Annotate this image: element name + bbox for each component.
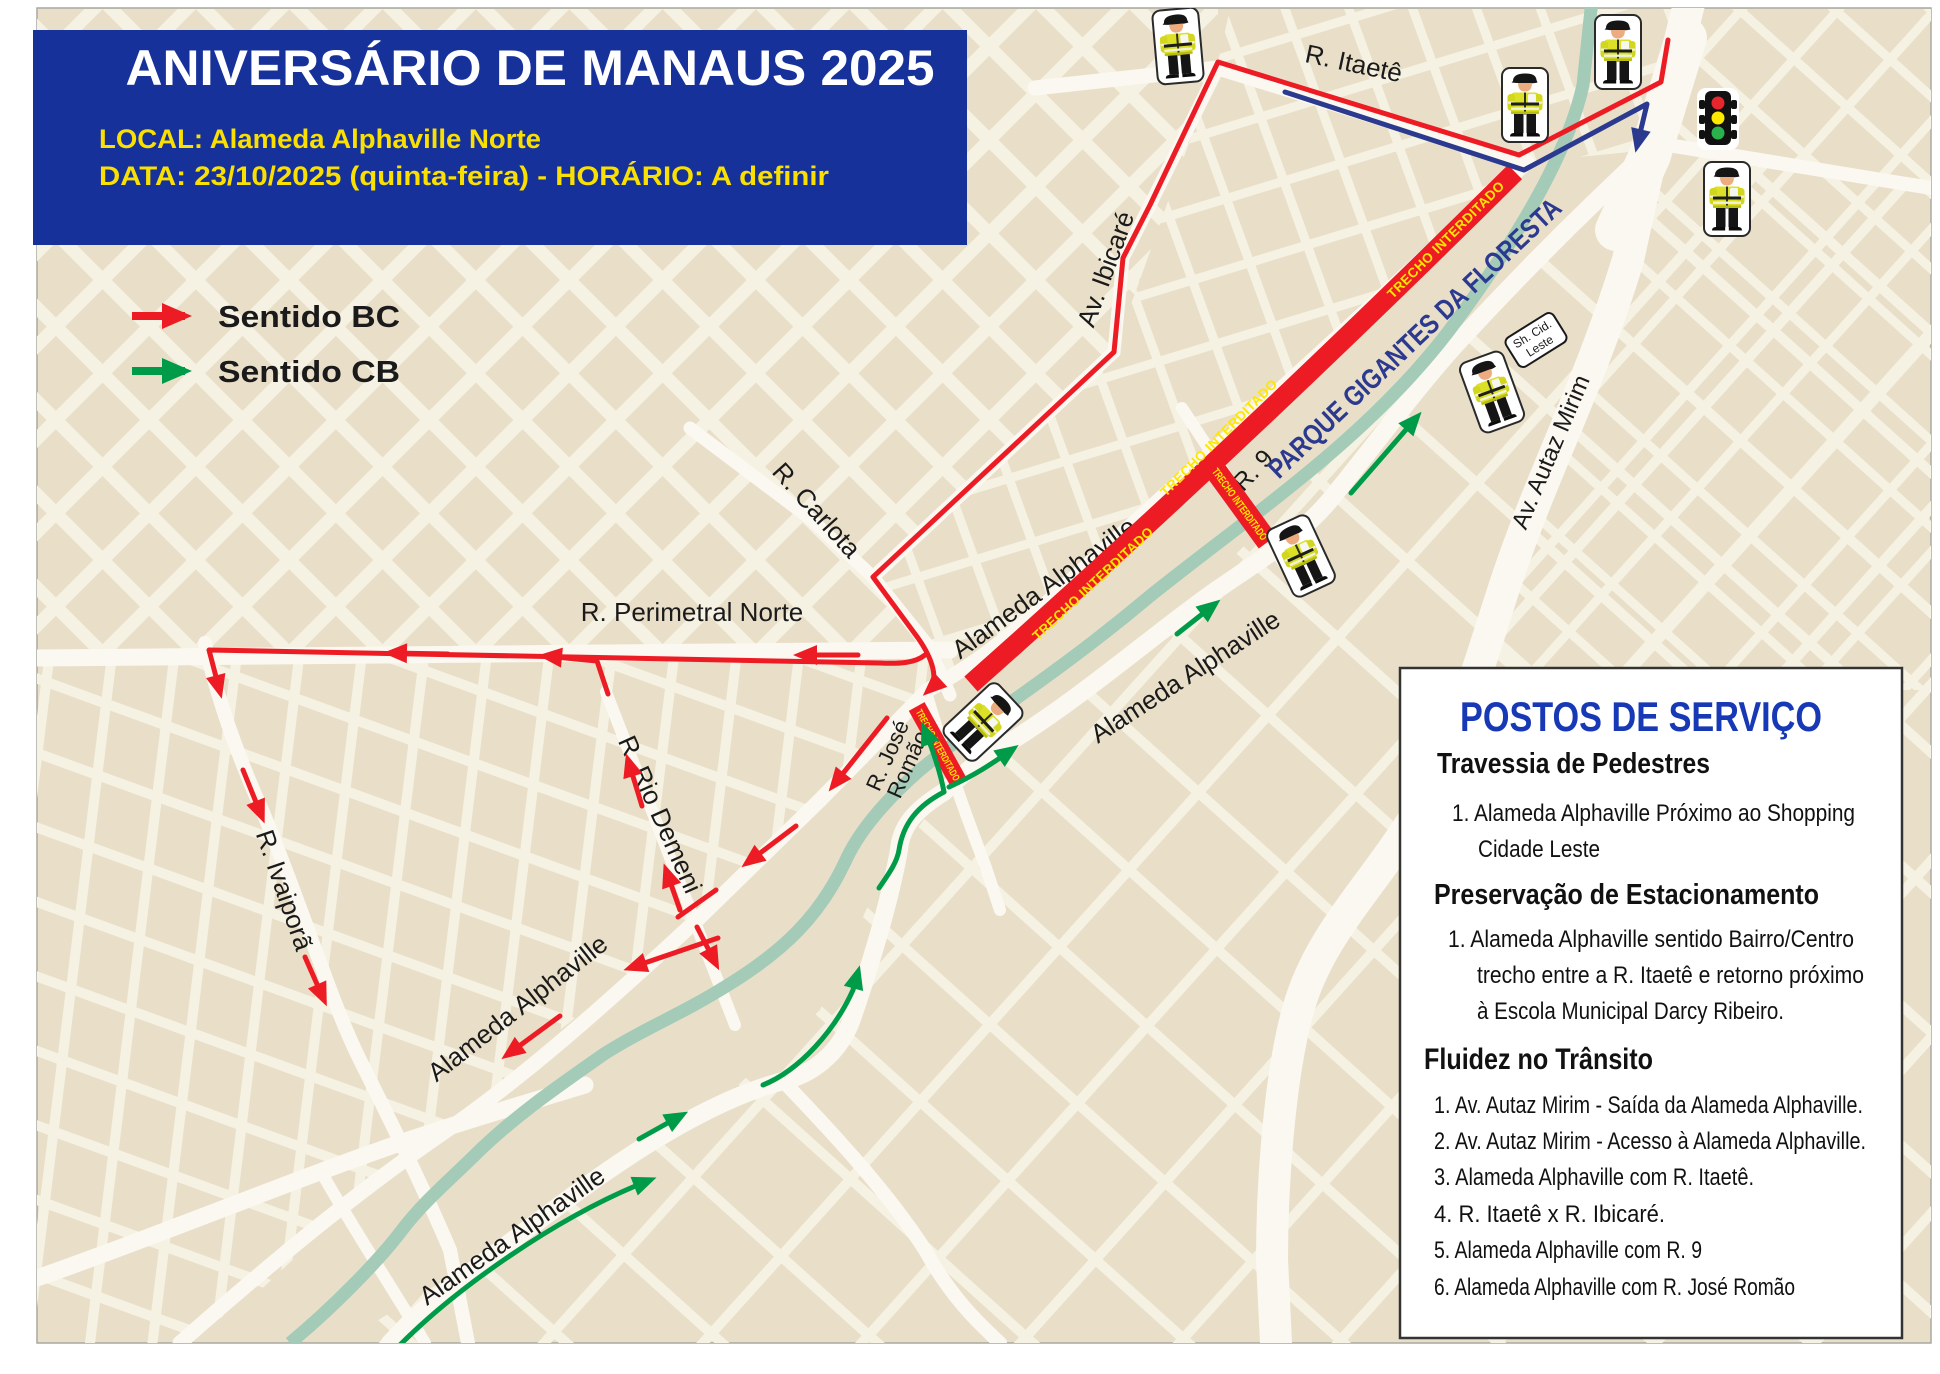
svg-text:1. Alameda Alphaville Próximo: 1. Alameda Alphaville Próximo ao Shoppin…	[1452, 800, 1855, 827]
svg-text:1. Av. Autaz Mirim - Saída da: 1. Av. Autaz Mirim - Saída da Alameda Al…	[1434, 1092, 1863, 1119]
svg-text:DATA: 23/10/2025 (quinta-feira: DATA: 23/10/2025 (quinta-feira) - HORÁRI…	[99, 160, 830, 191]
svg-text:4. R. Itaetê x R. Ibicaré.: 4. R. Itaetê x R. Ibicaré.	[1434, 1201, 1665, 1228]
svg-text:LOCAL: Alameda Alphaville Nort: LOCAL: Alameda Alphaville Norte	[99, 124, 541, 154]
svg-text:1. Alameda Alphaville sentido: 1. Alameda Alphaville sentido Bairro/Cen…	[1448, 926, 1854, 953]
svg-text:2. Av. Autaz Mirim - Acesso à: 2. Av. Autaz Mirim - Acesso à Alameda Al…	[1434, 1128, 1866, 1155]
svg-text:Cidade Leste: Cidade Leste	[1478, 836, 1600, 863]
svg-text:Sentido BC: Sentido BC	[218, 299, 400, 334]
svg-text:Preservação de Estacionamento: Preservação de Estacionamento	[1434, 879, 1819, 911]
svg-text:6. Alameda Alphaville com R. J: 6. Alameda Alphaville com R. José Romão	[1434, 1274, 1795, 1301]
svg-text:Fluidez no Trânsito: Fluidez no Trânsito	[1424, 1043, 1653, 1076]
svg-text:POSTOS DE SERVIÇO: POSTOS DE SERVIÇO	[1460, 693, 1822, 740]
svg-text:ANIVERSÁRIO DE MANAUS 2025: ANIVERSÁRIO DE MANAUS 2025	[126, 40, 935, 96]
svg-text:Travessia de Pedestres: Travessia de Pedestres	[1437, 748, 1710, 780]
svg-text:trecho entre a R. Itaetê e ret: trecho entre a R. Itaetê e retorno próxi…	[1477, 962, 1864, 989]
svg-text:5. Alameda Alphaville com R. 9: 5. Alameda Alphaville com R. 9	[1434, 1237, 1702, 1264]
svg-text:à Escola Municipal Darcy Ribei: à Escola Municipal Darcy Ribeiro.	[1477, 998, 1784, 1025]
svg-text:Sentido CB: Sentido CB	[218, 354, 400, 389]
svg-text:3. Alameda Alphaville com R. I: 3. Alameda Alphaville com R. Itaetê.	[1434, 1164, 1754, 1191]
svg-text:R. Perimetral Norte: R. Perimetral Norte	[581, 597, 804, 627]
